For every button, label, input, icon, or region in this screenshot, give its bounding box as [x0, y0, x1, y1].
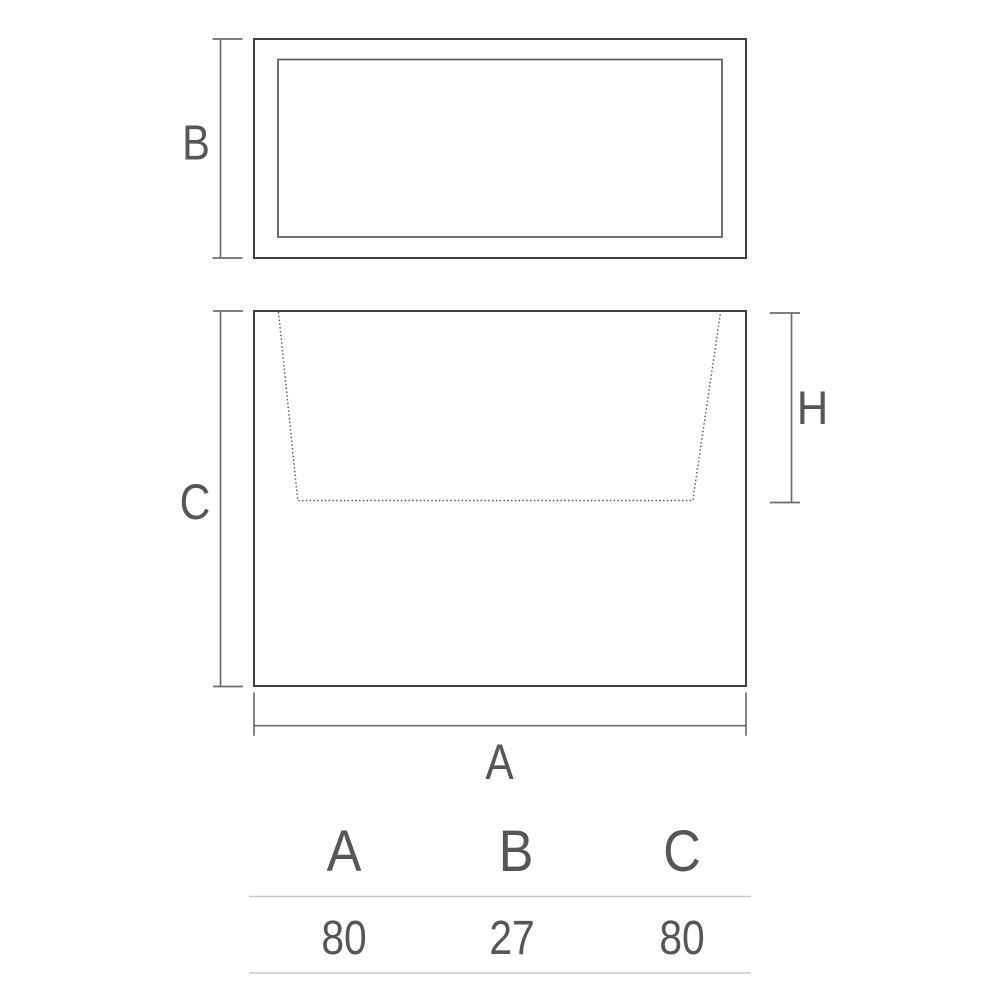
svg-text:C: C: [180, 474, 211, 530]
svg-text:C: C: [663, 818, 701, 883]
svg-text:27: 27: [489, 912, 534, 965]
svg-text:A: A: [327, 818, 362, 883]
svg-text:B: B: [499, 818, 534, 883]
svg-text:H: H: [797, 382, 829, 435]
svg-text:A: A: [485, 734, 513, 790]
svg-text:80: 80: [321, 912, 366, 965]
svg-text:80: 80: [659, 912, 704, 965]
svg-text:B: B: [182, 115, 210, 170]
